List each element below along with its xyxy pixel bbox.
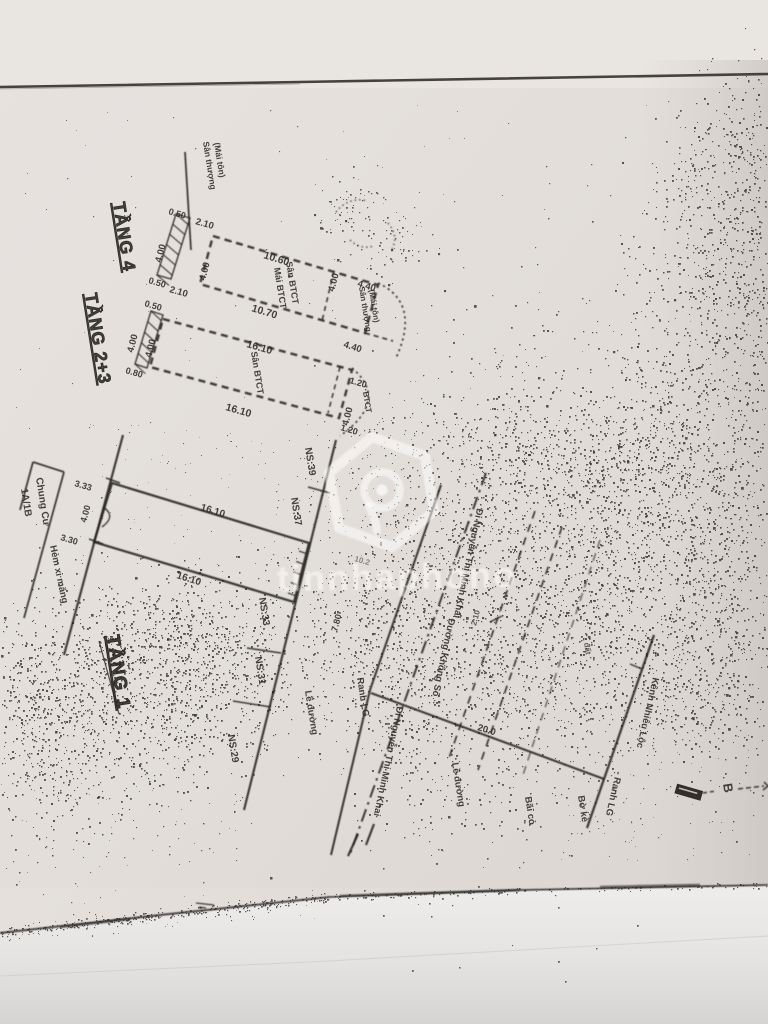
svg-text:tinnhaphono: tinnhaphono	[277, 554, 518, 599]
svg-text:đất: đất	[582, 642, 593, 656]
